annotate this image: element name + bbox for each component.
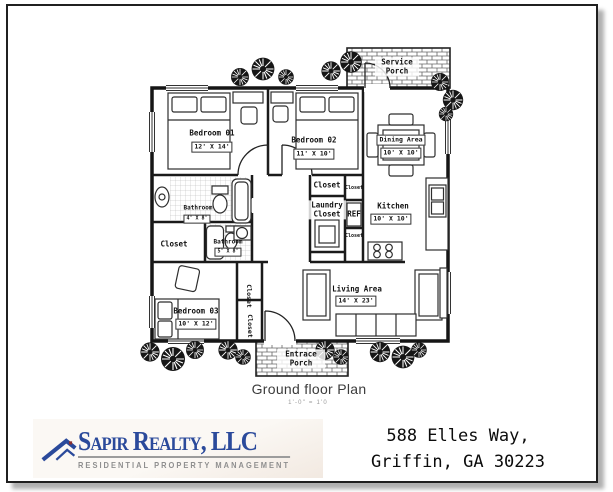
listing-flyer: Service Porch Bedroom 01 12' X 14' Bedro… — [0, 0, 613, 492]
bathroom1-dims: 4' X 8' — [183, 215, 210, 224]
living-dims: 14' X 23' — [335, 296, 376, 307]
closet-vert2-label: Closet — [246, 314, 254, 337]
bedroom3-dims: 10' X 12' — [175, 319, 216, 330]
address-line2: Griffin, GA 30223 — [347, 450, 569, 476]
bedroom3-label: Bedroom 03 — [173, 307, 218, 316]
kitchen-label: Kitchen — [377, 202, 409, 211]
property-address: 588 Elles Way, Griffin, GA 30223 — [347, 424, 569, 475]
brand-text: Sapir Realty, LLC RESIDENTIAL PROPERTY M… — [78, 427, 290, 469]
ref-label: REF — [347, 210, 361, 219]
brand-logo-block: Sapir Realty, LLC RESIDENTIAL PROPERTY M… — [33, 419, 323, 478]
closet-small2-label: Closet — [345, 233, 363, 239]
company-tagline: RESIDENTIAL PROPERTY MANAGEMENT — [78, 460, 290, 470]
bedroom2-label: Bedroom 02 — [291, 136, 336, 145]
bathroom2-label: Bathroom — [214, 239, 243, 246]
closet-small1-label: Closet — [345, 185, 363, 191]
closet-left-label: Closet — [160, 240, 187, 249]
roof-icon — [41, 424, 78, 474]
laundry-closet-label: Laundry Closet — [308, 200, 346, 219]
closet-vert1-label: Closet — [245, 284, 253, 307]
plan-scale-note: 1'-0" = 1'0 — [288, 400, 328, 406]
dining-label: Dining Area — [376, 135, 425, 146]
plan-title: Ground floor Plan — [252, 381, 367, 397]
service-porch-label: Service Porch — [375, 57, 419, 76]
brand-divider — [78, 456, 290, 458]
bathroom1-label: Bathroom — [184, 205, 213, 212]
kitchen-dims: 10' X 10' — [370, 214, 411, 225]
bedroom2-dims: 11' X 10' — [293, 149, 334, 160]
washer — [315, 220, 339, 247]
company-name: Sapir Realty, LLC — [78, 427, 290, 455]
bathroom2-dims: 5' X 8' — [214, 248, 241, 257]
bedroom1-label: Bedroom 01 — [189, 129, 234, 138]
closet-mid-label: Closet — [313, 181, 340, 190]
bedroom1-dims: 12' X 14' — [191, 142, 232, 153]
address-line1: 588 Elles Way, — [347, 424, 569, 450]
entrance-porch-label: Entrace Porch — [277, 349, 325, 368]
dining-dims: 10' X 10' — [380, 148, 421, 159]
living-label: Living Area — [332, 285, 382, 294]
